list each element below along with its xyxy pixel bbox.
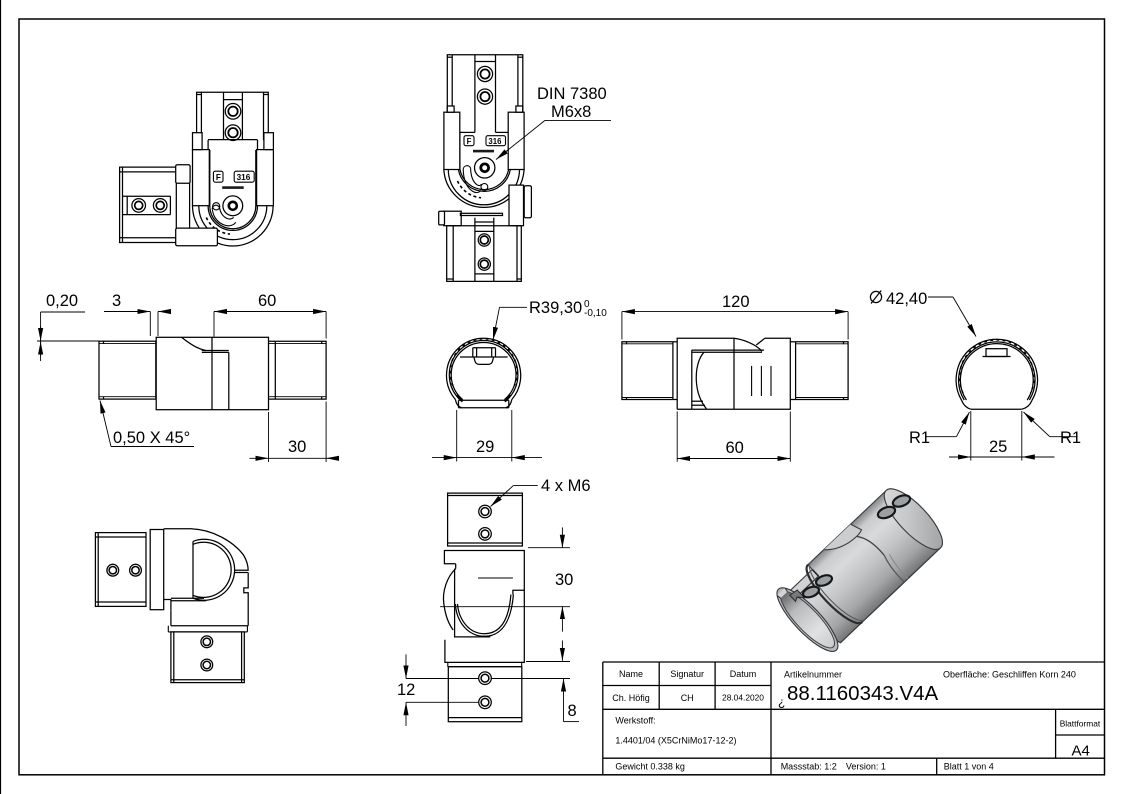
svg-text:120: 120 bbox=[722, 293, 750, 311]
svg-text:1.4401/04 (X5CrNiMo17-12-2): 1.4401/04 (X5CrNiMo17-12-2) bbox=[615, 736, 736, 746]
svg-text:4 x M6: 4 x M6 bbox=[541, 477, 591, 495]
svg-text:0,50 X 45°: 0,50 X 45° bbox=[113, 429, 190, 447]
svg-text:Blattformat: Blattformat bbox=[1060, 719, 1101, 729]
svg-text:30: 30 bbox=[555, 571, 573, 589]
svg-text:8: 8 bbox=[568, 702, 577, 720]
svg-text:R1: R1 bbox=[909, 429, 930, 447]
svg-text:F: F bbox=[216, 173, 221, 182]
svg-text:Gewicht 0.338 kg: Gewicht 0.338 kg bbox=[615, 762, 685, 772]
svg-text:60: 60 bbox=[726, 439, 744, 457]
svg-text:A4: A4 bbox=[1072, 743, 1090, 760]
svg-text:316: 316 bbox=[237, 173, 251, 182]
svg-text:88.1160343.V4A: 88.1160343.V4A bbox=[787, 682, 939, 705]
svg-text:0,20: 0,20 bbox=[46, 292, 78, 310]
svg-text:Werkstoff:: Werkstoff: bbox=[615, 716, 655, 726]
svg-text:Signatur: Signatur bbox=[670, 669, 704, 679]
svg-text:CH: CH bbox=[681, 693, 694, 703]
svg-text:25: 25 bbox=[989, 438, 1007, 456]
svg-text:M6x8: M6x8 bbox=[551, 103, 591, 121]
svg-text:¿: ¿ bbox=[778, 695, 785, 709]
svg-text:29: 29 bbox=[476, 438, 494, 456]
svg-text:Datum: Datum bbox=[730, 669, 757, 679]
svg-text:Ch. Höfig: Ch. Höfig bbox=[612, 693, 650, 703]
svg-text:3: 3 bbox=[112, 292, 121, 310]
svg-text:30: 30 bbox=[288, 438, 306, 456]
svg-text:DIN 7380: DIN 7380 bbox=[537, 85, 607, 103]
svg-text:Version: 1: Version: 1 bbox=[846, 762, 886, 772]
svg-text:Oberfläche: Geschliffen Korn: Oberfläche: Geschliffen Korn 240 bbox=[943, 670, 1076, 680]
svg-text:-0,10: -0,10 bbox=[584, 308, 607, 319]
svg-text:12: 12 bbox=[397, 681, 415, 699]
svg-text:R39,30: R39,30 bbox=[529, 299, 582, 317]
svg-text:Artikelnummer: Artikelnummer bbox=[784, 670, 842, 680]
svg-text:60: 60 bbox=[258, 292, 276, 310]
svg-text:R1: R1 bbox=[1060, 429, 1081, 447]
svg-text:Name: Name bbox=[619, 669, 643, 679]
svg-text:28.04.2020: 28.04.2020 bbox=[722, 693, 764, 703]
svg-text:F: F bbox=[467, 137, 472, 146]
svg-text:Blatt 1 von 4: Blatt 1 von 4 bbox=[944, 762, 994, 772]
svg-text:316: 316 bbox=[488, 137, 502, 146]
svg-text:Massstab: 1:2: Massstab: 1:2 bbox=[781, 762, 837, 772]
svg-text:42,40: 42,40 bbox=[886, 290, 927, 308]
